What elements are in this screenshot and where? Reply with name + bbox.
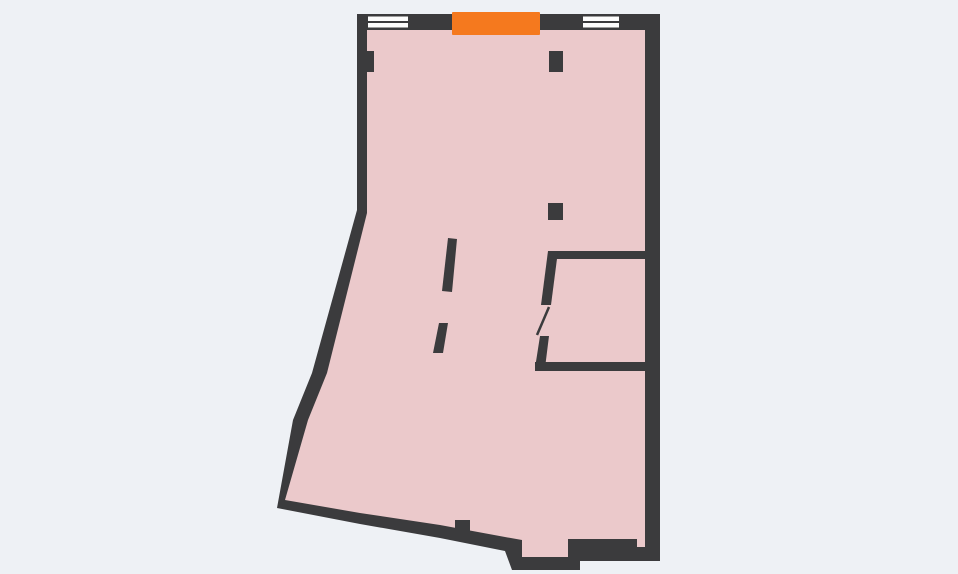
highlighted-opening-marker[interactable] — [452, 12, 540, 35]
column-middle — [548, 203, 563, 220]
window-top-left-mullion-line — [368, 21, 408, 23]
subroom-top-wall — [548, 251, 645, 259]
floorplan-svg — [0, 0, 958, 574]
column-top — [549, 51, 563, 72]
window-top-right-mullion-line — [583, 21, 619, 23]
subroom-bottom-wall — [535, 362, 645, 371]
floorplan-canvas — [0, 0, 958, 574]
left-wall-stub — [365, 51, 374, 72]
bottom-wall-stub — [455, 520, 470, 538]
